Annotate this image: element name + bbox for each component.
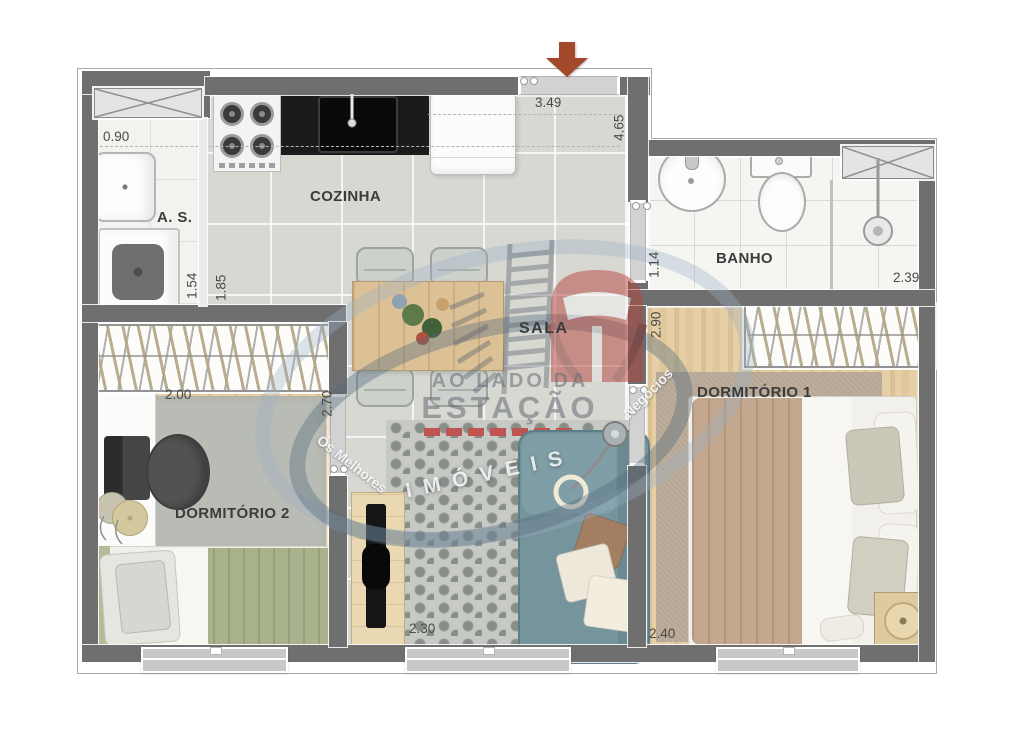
entry-arrow (546, 42, 588, 76)
window-area-servico (94, 88, 202, 118)
dim-kitchen-depth: 4.65 (612, 106, 626, 150)
bedroom1-wardrobe (744, 304, 936, 368)
flower (436, 298, 449, 311)
table-centerpiece-flowers (392, 292, 462, 354)
dim-sala-width: 2.30 (409, 622, 435, 636)
label-area-servico: A. S. (157, 210, 192, 225)
dim-bath-width: 2.39 (893, 271, 919, 285)
shower-divider (830, 180, 833, 290)
plan-outline-right (936, 138, 937, 674)
bedroom2-blanket (198, 548, 332, 645)
dim-as-length: 1.54 (185, 264, 199, 308)
entry-door (518, 76, 620, 95)
window-bathroom (842, 146, 934, 179)
desk-decor-disc (112, 500, 148, 536)
label-sala: SALA (519, 321, 569, 337)
washing-machine-drum (112, 244, 164, 300)
dim-as-width: 0.90 (103, 130, 129, 144)
dim-dorm2-width: 2.00 (165, 388, 191, 402)
dim-line-horizontal-upper (100, 146, 620, 147)
laptop (104, 436, 150, 500)
flower (402, 304, 424, 326)
label-cozinha: COZINHA (310, 189, 381, 204)
plan-outline-bottom (77, 673, 937, 674)
window-bedroom2 (141, 647, 288, 673)
label-banho: BANHO (716, 251, 773, 266)
window-living (405, 647, 571, 673)
bedroom2-pillow-inner (114, 560, 171, 635)
bedroom1-door (629, 384, 645, 466)
wall-bath-bedroom1 (628, 290, 935, 306)
label-dormitorio2: DORMITÓRIO 2 (175, 506, 290, 521)
bedroom2-wardrobe (94, 324, 338, 392)
dim-entry-width: 3.49 (535, 96, 561, 110)
bathroom-door (630, 200, 646, 283)
plan-outline-top-right (651, 138, 937, 139)
floor-plan: COZINHA SALA BANHO DORMITÓRIO 1 DORMITÓR… (0, 0, 1024, 736)
dim-kitchen-side: 1.85 (214, 266, 228, 310)
wall-living-bedroom1-b (628, 466, 646, 647)
stove-burner (250, 102, 274, 126)
dining-chair (430, 367, 488, 407)
stove-vent (219, 163, 275, 168)
wall-as-kitchen-divider (199, 118, 207, 306)
stove-burner (220, 102, 244, 126)
flower (416, 332, 429, 345)
wall-kitchen-bath-a (628, 77, 648, 202)
entry-arrow-head (546, 58, 588, 77)
wall-left (82, 95, 98, 662)
wall-living-bedroom1-a (628, 306, 646, 384)
bedroom1-sheet (802, 398, 852, 645)
dining-chair (356, 367, 414, 407)
toilet-bowl (758, 172, 806, 232)
label-dormitorio1: DORMITÓRIO 1 (697, 385, 812, 400)
wall-living-bedroom2-b (329, 476, 347, 647)
dim-dorm1-width: 2.40 (649, 627, 675, 641)
dim-bath-entry: 1.14 (647, 243, 661, 287)
dim-dorm1-depth: 2.90 (649, 303, 663, 347)
tv-soundbar (362, 544, 390, 590)
plan-outline-step (651, 68, 652, 139)
wall-top-a (205, 77, 518, 95)
dim-dorm2-depth: 2.70 (320, 382, 334, 426)
nightstand-tray (884, 602, 922, 640)
laundry-tank (94, 152, 156, 222)
fridge (430, 92, 516, 175)
sofa-chaise-cushion (522, 434, 616, 514)
bedroom1-blanket (692, 398, 804, 645)
flower (392, 294, 407, 309)
kitchen-sink (318, 96, 398, 153)
dim-line-entry (428, 114, 622, 115)
desk-chair (146, 434, 210, 510)
wall-right (919, 140, 935, 662)
window-bedroom1 (716, 647, 860, 673)
stove (213, 93, 281, 172)
bedroom1-pillow-sage (845, 426, 905, 506)
plan-outline-left (77, 68, 78, 674)
